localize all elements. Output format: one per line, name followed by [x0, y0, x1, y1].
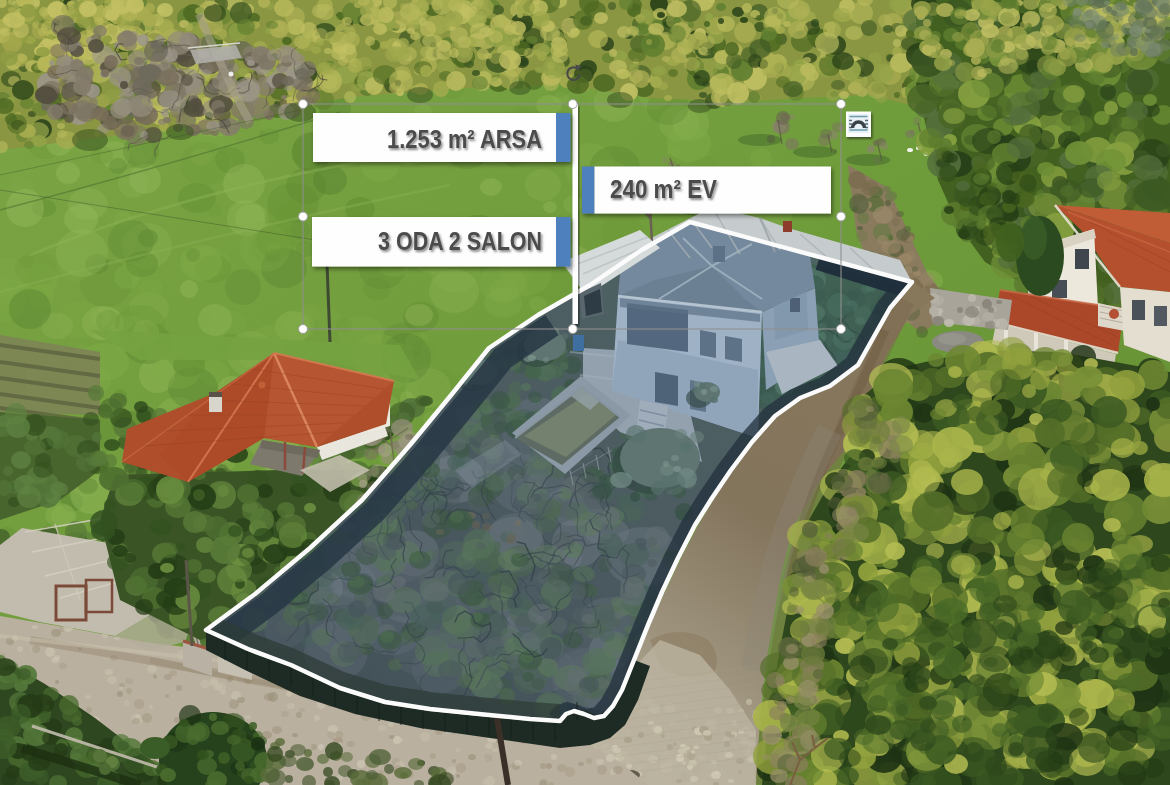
svg-text:3 ODA 2 SALON: 3 ODA 2 SALON	[378, 227, 542, 255]
svg-text:240 m² EV: 240 m² EV	[610, 175, 717, 203]
svg-text:1.253 m² ARSA: 1.253 m² ARSA	[387, 125, 542, 153]
